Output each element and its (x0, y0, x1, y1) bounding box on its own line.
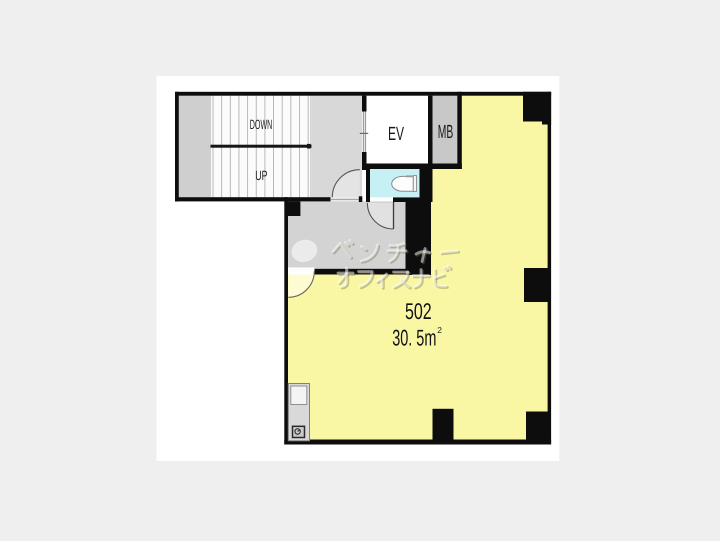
svg-text:UP: UP (255, 168, 267, 183)
svg-text:30. 5m: 30. 5m (392, 324, 436, 350)
svg-text:2: 2 (437, 325, 442, 335)
svg-text:DOWN: DOWN (250, 117, 272, 132)
svg-text:EV: EV (388, 124, 404, 145)
svg-text:502: 502 (405, 298, 432, 324)
svg-text:MB: MB (438, 122, 454, 143)
